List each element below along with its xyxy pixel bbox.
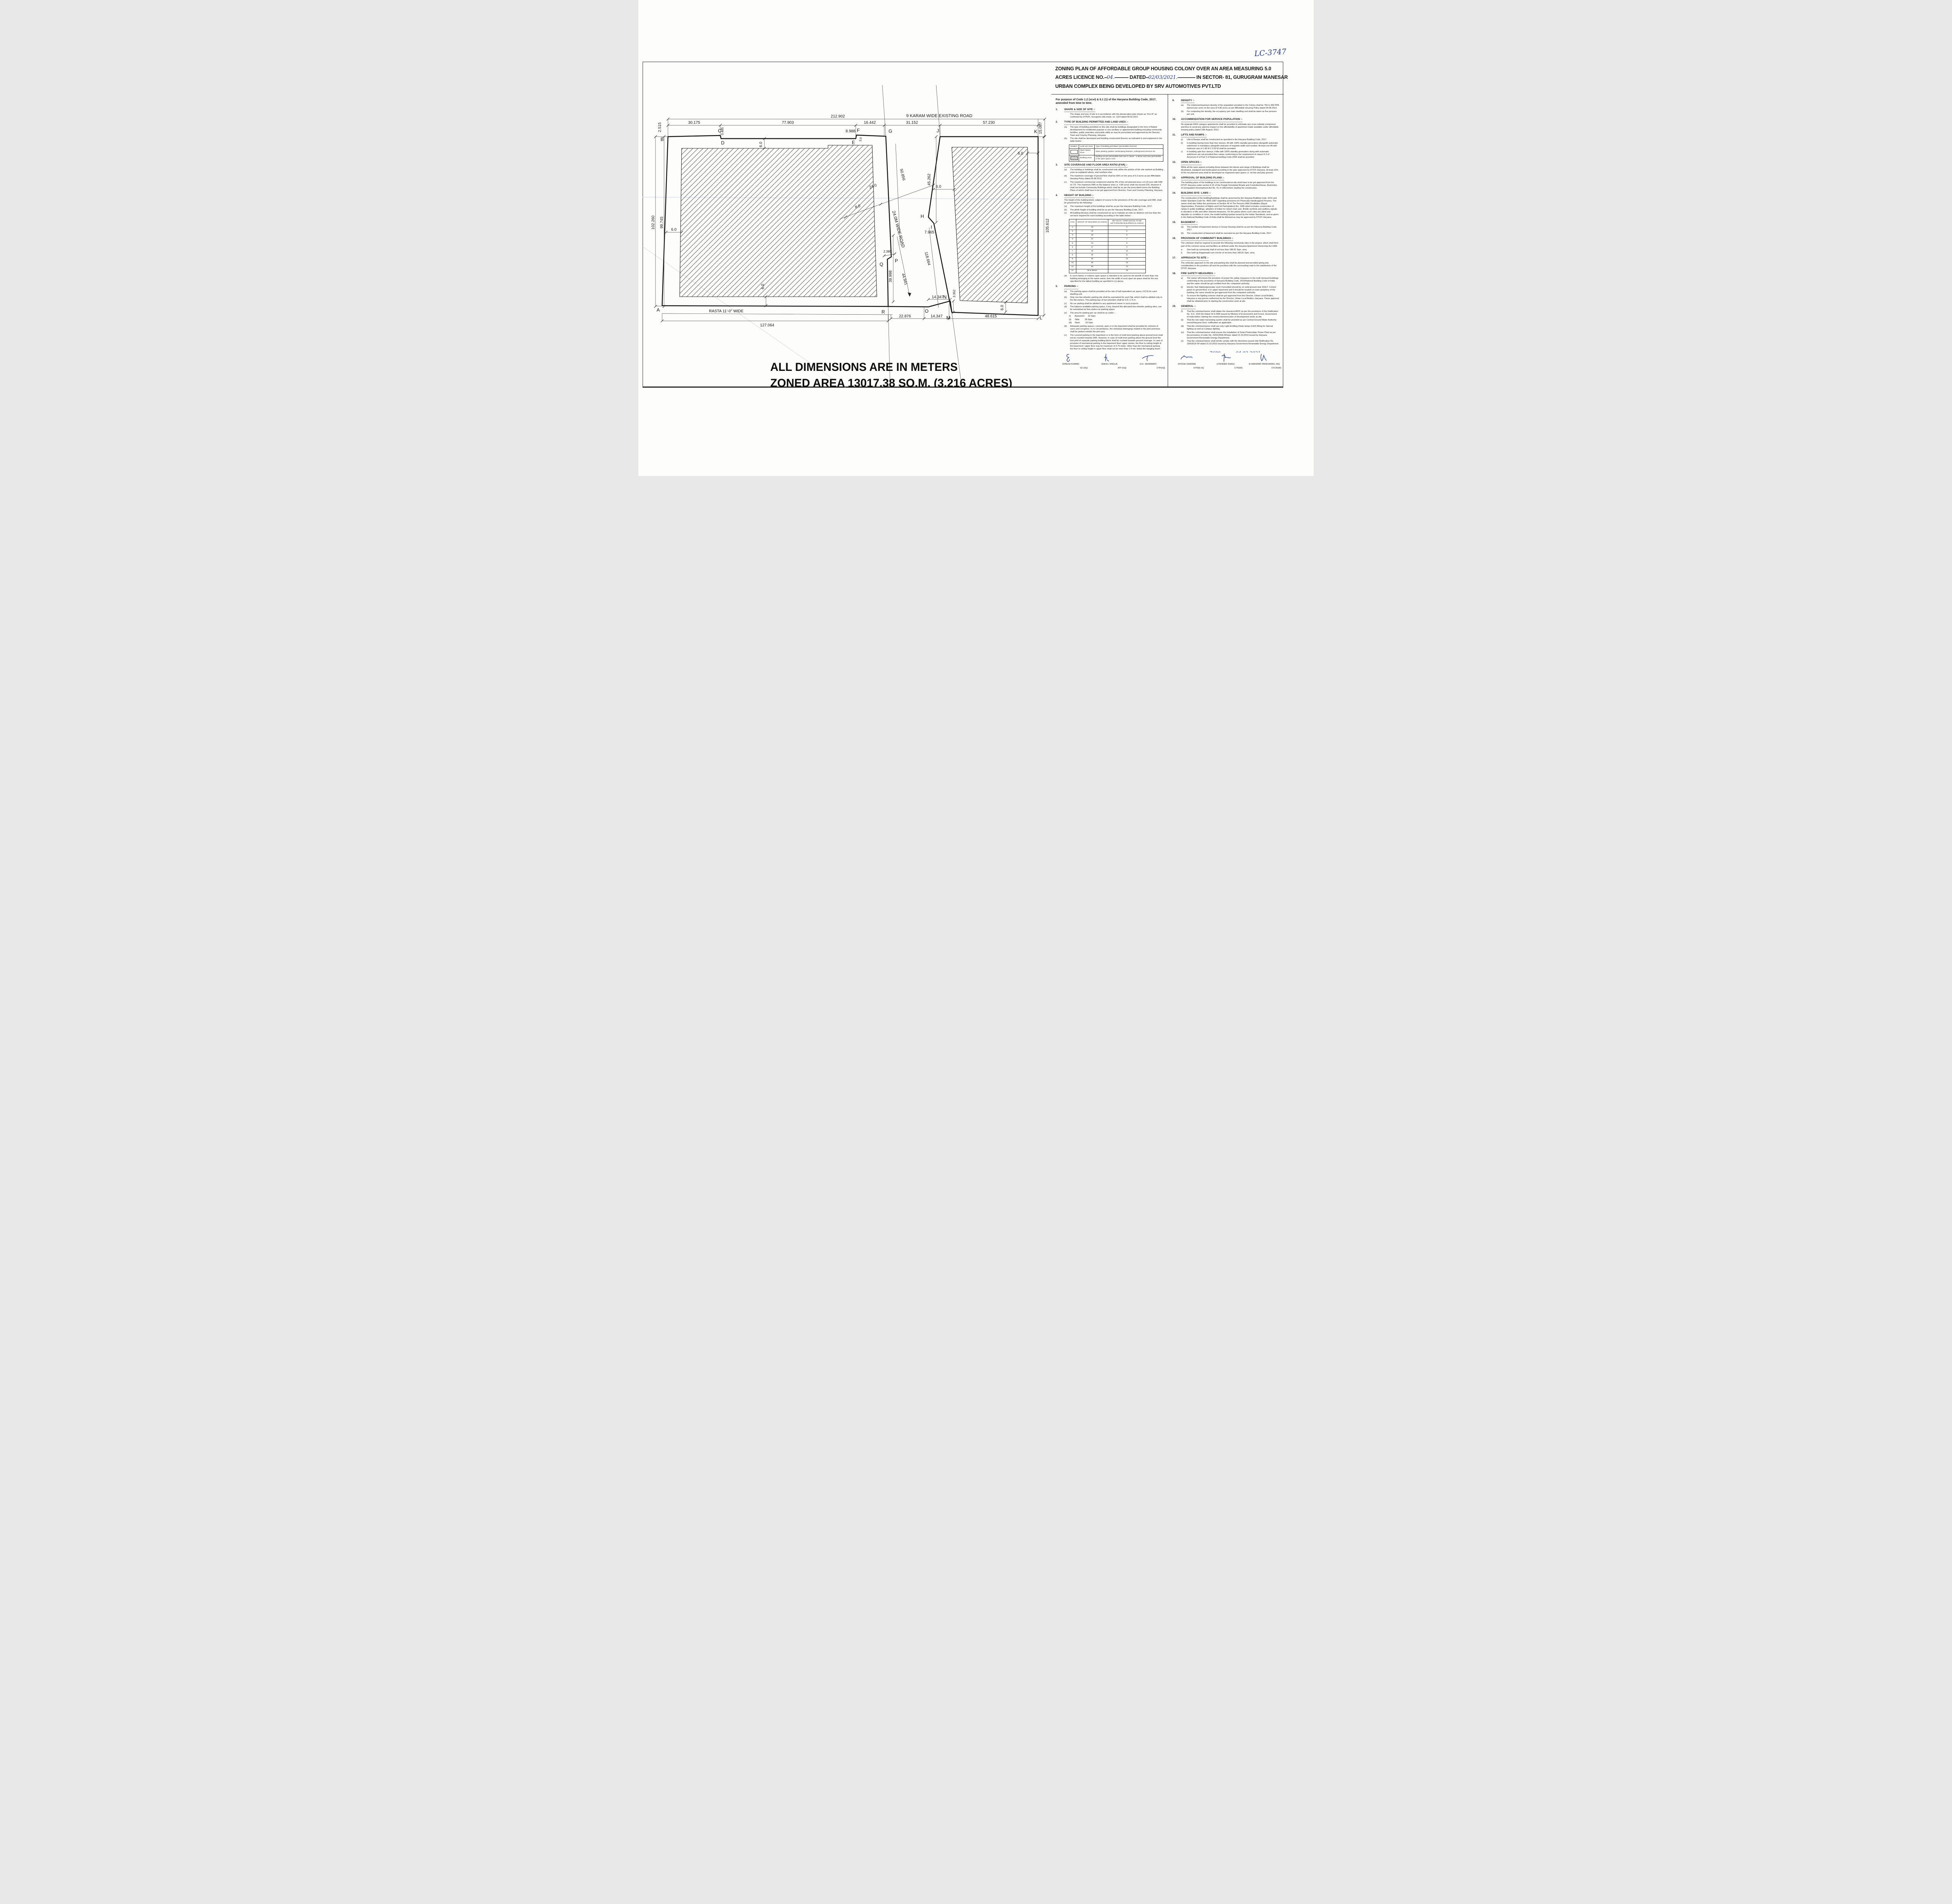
- note-item: (e)The area for parking per car shall be…: [1064, 312, 1163, 315]
- point-label: L: [1040, 315, 1042, 321]
- item-text: The owner will ensure the provision of p…: [1187, 277, 1279, 285]
- section-lead: The coloniser shall be required to provi…: [1181, 242, 1279, 248]
- hatch-rect-icon: [1070, 156, 1078, 160]
- section-lead: The vehicular approach to the site and p…: [1181, 262, 1279, 270]
- open-rect-icon: [1070, 150, 1078, 154]
- dimension-label: 3.0: [858, 137, 863, 142]
- item-text: The type of building permitted on this s…: [1070, 126, 1163, 137]
- signature-icon: [1218, 353, 1233, 363]
- section-number: 19.: [1172, 305, 1181, 309]
- section-number: 15.: [1172, 221, 1181, 225]
- building-zone-left-hatch: [680, 145, 877, 297]
- table-cell: 8.: [1069, 253, 1076, 257]
- setback-label: 6.0: [759, 142, 763, 147]
- table-cell: 16: [1108, 269, 1145, 273]
- section-lead: The height of the building block, subjec…: [1064, 199, 1163, 205]
- section-heading: 3.SITE COVERAGE AND FLOOR AREA RATIO (FA…: [1056, 164, 1163, 167]
- item-text: One built-up Anganwadi-cum-creche of not…: [1187, 252, 1279, 255]
- item-label: (i): [1181, 310, 1187, 319]
- section-heading: 9.DENSITY :-: [1172, 99, 1279, 103]
- note-item: (d)The balance available parking space, …: [1064, 306, 1163, 311]
- item-text: The parking space shall be provided at t…: [1070, 290, 1163, 296]
- note-item: (c)All building block(s) shall be constr…: [1064, 212, 1163, 217]
- note-item: (ii)Stilts 28 Sqm.: [1069, 319, 1163, 321]
- table-cell: 45: [1076, 261, 1108, 265]
- item-text: Stilts 28 Sqm.: [1075, 319, 1163, 321]
- item-text: The site shall be developed and building…: [1070, 137, 1163, 143]
- section-heading: 18.FIRE SAFETY MEASURES :-: [1172, 272, 1279, 276]
- licence-file-number: LC-3747: [1254, 47, 1286, 58]
- dimension-label: 22.876: [899, 314, 911, 319]
- item-label: (c): [1064, 334, 1070, 351]
- item-text: That the coloniser/owner shall obtain th…: [1187, 310, 1279, 319]
- signatory-role: STP(M) HQ: [1168, 367, 1206, 369]
- note-section: 18.FIRE SAFETY MEASURES :-a)The owner wi…: [1172, 272, 1279, 303]
- item-text: In building having more than four storey…: [1187, 142, 1279, 150]
- section-title: BASEMENT :-: [1181, 221, 1198, 225]
- column-header: S.No.: [1069, 219, 1076, 226]
- signature-block: (S.K. SEHRAWAT)DTP(HQ): [1129, 351, 1167, 386]
- dimension-label: 16.442: [864, 121, 876, 125]
- section-number: 10.: [1172, 118, 1181, 122]
- table-row: 3.186: [1069, 233, 1146, 237]
- dimension-label: 57.230: [983, 121, 995, 125]
- note-section: 12.OPEN SPACES :-While all the open spac…: [1172, 161, 1279, 175]
- item-label: (d): [1064, 306, 1070, 311]
- table-row: 7.3010: [1069, 249, 1146, 253]
- item-label: (a): [1064, 169, 1070, 174]
- section-lead: The construction of the building/buildin…: [1181, 197, 1279, 219]
- dimension-label: 2.515: [658, 122, 662, 132]
- table-cell: 15: [1076, 230, 1108, 233]
- note-section: 2.TYPE OF BUILDING PERMITTED AND LAND US…: [1056, 121, 1163, 162]
- section-number: 16.: [1172, 237, 1181, 241]
- note-item: b)In building having more than four stor…: [1181, 142, 1279, 150]
- item-label: a): [1181, 139, 1187, 141]
- signatory-role: DTP(HQ): [1129, 367, 1167, 369]
- table-cell: 7: [1108, 237, 1145, 241]
- item-label: b.: [1181, 252, 1187, 255]
- section-number: 18.: [1172, 272, 1181, 276]
- point-label: H: [921, 214, 924, 219]
- section-number: 17.: [1172, 256, 1181, 260]
- table-cell: 2.: [1069, 230, 1076, 233]
- section-title: TYPE OF BUILDING PERMITTED AND LAND USES…: [1064, 121, 1128, 125]
- table-cell: 3.: [1069, 233, 1076, 237]
- section-number: 12.: [1172, 161, 1181, 165]
- table-cell: 5.: [1069, 242, 1076, 246]
- section-heading: 5.PARKING :-: [1056, 285, 1163, 289]
- item-label: (ii): [1181, 319, 1187, 324]
- section-heading: 15.BASEMENT :-: [1172, 221, 1279, 225]
- section-number: 4.: [1056, 194, 1064, 198]
- signatory-role: CTP(HR): [1206, 367, 1245, 369]
- signature-block: (K.MAKRAND PANDURANG, IAS)DTCP(HR): [1245, 351, 1284, 386]
- section-number: 2.: [1056, 121, 1064, 125]
- table-cell: 10.: [1069, 261, 1076, 265]
- note-section: 11.LIFTS AND RAMPS :-a)Lifts & Ramps sha…: [1172, 134, 1279, 159]
- item-label: (b): [1064, 296, 1070, 302]
- point-label: R: [882, 309, 885, 315]
- dimension-tick: [880, 203, 882, 206]
- item-text: Only one two-wheeler parking site shall …: [1070, 296, 1163, 302]
- item-label: (b).: [1064, 137, 1070, 143]
- building-zone-right-hatch: [952, 147, 1028, 303]
- dimension-label: 118.664: [924, 251, 931, 266]
- item-label: (d): [1064, 275, 1070, 283]
- item-text: All building block(s) shall be construct…: [1070, 212, 1163, 217]
- point-label: C: [718, 128, 721, 134]
- dimension-label: 127.064: [760, 323, 775, 328]
- section-title: BUILDING BYE- LAWS :-: [1181, 192, 1211, 196]
- zoning-plan-sheet: LC-3747 ZONING PLAN OF AFFORDABLE GROUP …: [638, 0, 1314, 476]
- item-label: (c): [1064, 212, 1070, 217]
- table-row: 5.248: [1069, 242, 1146, 246]
- section-number: 11.: [1172, 134, 1181, 137]
- item-text: In building upto four storeys, if lifts …: [1187, 151, 1279, 159]
- signatory-role: SD (HQ): [1051, 367, 1090, 369]
- note-item: (a)The building or buildings shall be co…: [1064, 169, 1163, 174]
- type-cell: Open parking, garden, landscaping featur…: [1094, 149, 1163, 155]
- table-row: 2.155: [1069, 230, 1146, 233]
- land-use-table: NotationLand use ZoneType of Building pe…: [1069, 144, 1163, 162]
- note-item: (c)The covered parking in the basement o…: [1064, 334, 1163, 351]
- table-cell: 27: [1076, 246, 1108, 249]
- section-title: SITE COVERAGE AND FLOOR AREA RATIO (FAR)…: [1064, 164, 1128, 167]
- note-item: (b)The maximum coverage of ground floor …: [1064, 175, 1163, 180]
- item-text: Electric Sub Station/generator room if p…: [1187, 286, 1279, 294]
- note-item: (b).The site shall be developed and buil…: [1064, 137, 1163, 143]
- table-cell: 5: [1108, 230, 1145, 233]
- section-heading: 14.BUILDING BYE- LAWS :-: [1172, 192, 1279, 196]
- dimension-label: 50.856: [899, 168, 906, 181]
- table-row: 10.4513: [1069, 261, 1146, 265]
- column-header: HEIGHT OF BUILDING (in meters): [1076, 219, 1108, 226]
- note-item: (ii)That the rain water harvesting syste…: [1181, 319, 1279, 324]
- table-cell: 9.: [1069, 257, 1076, 261]
- notes-column-right: 9.DENSITY :-(a)The minimum/maximum densi…: [1168, 94, 1283, 353]
- table-cell: 4.: [1069, 237, 1076, 241]
- item-label: b): [1181, 286, 1187, 294]
- signatory-name: (RAHUL SINGLA): [1090, 363, 1129, 365]
- note-item: a.One built-up community Hall of not les…: [1181, 249, 1279, 251]
- signature-block: (RAHUL SINGLA)ATP (HQ): [1090, 351, 1129, 386]
- section-title: OPEN SPACES :-: [1181, 161, 1202, 165]
- section-heading: 16.PROVISION OF COMMUNITY BUILDINGS :-: [1172, 237, 1279, 241]
- item-label: (a): [1064, 290, 1070, 296]
- section-heading: 11.LIFTS AND RAMPS :-: [1172, 134, 1279, 137]
- setback-label: 6.0: [1018, 151, 1023, 156]
- section-number: 14.: [1172, 192, 1181, 196]
- section-lead: The building plans of the buildings to b…: [1181, 182, 1279, 190]
- section-title: APPROVAL OF BUILDING PLANS :-: [1181, 176, 1224, 180]
- note-section: 4.HEIGHT OF BUILDING :-The height of the…: [1056, 194, 1163, 283]
- item-text: The balance available parking space, if …: [1070, 306, 1163, 311]
- section-title: LIFTS AND RAMPS :-: [1181, 134, 1207, 137]
- note-section: 19.GENERAL :-(i)That the coloniser/owner…: [1172, 305, 1279, 346]
- signature-block: (HITESH SHARMA)STP(M) HQ: [1168, 351, 1206, 386]
- point-label: K: [1034, 129, 1037, 134]
- licence-no-handwritten: 04.: [1107, 75, 1114, 80]
- section-lead: No separate EWS category apartments shal…: [1181, 123, 1279, 132]
- item-text: One built-up community Hall of not less …: [1187, 249, 1279, 251]
- notation-cell: [1069, 155, 1079, 161]
- table-cell: 55 & above: [1076, 269, 1108, 273]
- column-header: Notation: [1069, 145, 1079, 149]
- signature-icon: [1141, 353, 1156, 363]
- item-label: a.: [1181, 249, 1187, 251]
- setback-label: 6.0: [936, 185, 941, 189]
- item-label: (iii): [1181, 325, 1187, 331]
- item-text: Basement 32 Sqm.: [1075, 315, 1163, 318]
- dimension-label: 7.965: [924, 230, 934, 235]
- item-text: That the rain water harvesting system sh…: [1187, 319, 1279, 324]
- dimension-label: 15.087: [1038, 122, 1043, 134]
- note-item: (b)Adequate parking spaces, covered, ope…: [1064, 325, 1163, 333]
- note-section: 9.DENSITY :-(a)The minimum/maximum densi…: [1172, 99, 1279, 116]
- item-text: If, such interior or exterior open space…: [1070, 275, 1163, 283]
- point-label: Q: [880, 262, 883, 267]
- site-boundary-south-step: [888, 301, 952, 312]
- note-item: (a)The number of basement storeys in Gro…: [1181, 226, 1279, 232]
- table-row: 6.279: [1069, 246, 1146, 249]
- zone-cell: Open Space Zone: [1079, 149, 1095, 155]
- point-label: D: [721, 140, 725, 146]
- section-number: 13.: [1172, 176, 1181, 180]
- point-label: I: [931, 224, 932, 230]
- dimensions-note: ALL DIMENSIONS ARE IN METERS: [770, 361, 958, 374]
- dimension-label: 105.612: [1045, 218, 1050, 233]
- point-label: N: [943, 294, 947, 300]
- table-row: 9.4012: [1069, 257, 1146, 261]
- item-label: c): [1181, 151, 1187, 159]
- setback-label: 6.0: [761, 284, 765, 289]
- section-lead: While all the open spaces including thos…: [1181, 166, 1279, 175]
- item-label: c): [1181, 295, 1187, 303]
- note-section: 17.APPROACH TO SITE :-The vehicular appr…: [1172, 256, 1279, 270]
- note-item: (b)For computing the density, the occupa…: [1181, 110, 1279, 116]
- note-section: 3.SITE COVERAGE AND FLOOR AREA RATIO (FA…: [1056, 164, 1163, 192]
- section-number: 1.: [1056, 108, 1064, 112]
- item-text: That the coloniser/owner shall strictly …: [1187, 340, 1279, 346]
- item-text: The building or buildings shall be const…: [1070, 169, 1163, 174]
- dimension-label: 102.260: [651, 215, 655, 230]
- dimension-label: 77.903: [782, 121, 794, 125]
- note-item: (a)The maximum height of the buildings s…: [1064, 205, 1163, 208]
- column-header: Type of Building permitted / permissible…: [1094, 145, 1163, 149]
- signature-icon: [1179, 353, 1194, 363]
- item-text: Open 23 Sqm.: [1075, 322, 1163, 324]
- note-item: (a)The parking space shall be provided a…: [1064, 290, 1163, 296]
- dimension-label: 45.262: [927, 173, 931, 185]
- table-cell: 11.: [1069, 265, 1076, 269]
- table-cell: 14: [1108, 265, 1145, 269]
- note-item: (c)The maximum commercial component shal…: [1064, 181, 1163, 192]
- table-cell: 10: [1076, 226, 1108, 230]
- item-label: (c): [1064, 181, 1070, 192]
- table-row: 8.3511: [1069, 253, 1146, 257]
- point-label: A: [657, 307, 660, 313]
- item-text: The area for parking per car shall be as…: [1070, 312, 1163, 315]
- section-number: 9.: [1172, 99, 1181, 103]
- note-section: 14.BUILDING BYE- LAWS :-The construction…: [1172, 192, 1279, 219]
- title-line-1: ZONING PLAN OF AFFORDABLE GROUP HOUSING …: [1055, 64, 1274, 73]
- section-heading: 13.APPROVAL OF BUILDING PLANS :-: [1172, 176, 1279, 180]
- table-cell: 10: [1108, 249, 1145, 253]
- point-label: E: [852, 140, 855, 145]
- note-item: c)To ensure fire fighting scheme shall b…: [1181, 295, 1279, 303]
- dimension-label: 8.988: [846, 129, 855, 134]
- table-cell: 1.: [1069, 226, 1076, 230]
- item-label: [1064, 113, 1070, 119]
- item-text: The maximum coverage of ground floor sha…: [1070, 175, 1163, 180]
- item-label: (c): [1064, 303, 1070, 305]
- signatory-role: DTCP(HR): [1245, 367, 1284, 369]
- item-label: (a): [1181, 104, 1187, 110]
- item-text: That the coloniser/owner shall use only …: [1187, 325, 1279, 331]
- dimension-label: 14.347: [931, 314, 943, 319]
- item-text: For computing the density, the occupancy…: [1187, 110, 1279, 116]
- section-heading: 19.GENERAL :-: [1172, 305, 1279, 309]
- note-item: b.One built-up Anganwadi-cum-creche of n…: [1181, 252, 1279, 255]
- dimension-label: 30.175: [688, 121, 700, 125]
- table-cell: 12: [1108, 257, 1145, 261]
- section-number: 3.: [1056, 164, 1064, 167]
- table-cell: 12.: [1069, 269, 1076, 273]
- dimension-label: 212.902: [831, 114, 845, 119]
- section-heading: 10.ACCOMMODATION FOR SERVICE POPULATION …: [1172, 118, 1279, 122]
- note-section: 15.BASEMENT :-(a)The number of basement …: [1172, 221, 1279, 235]
- item-label: (a).: [1064, 126, 1070, 137]
- note-item: (b)Only one two-wheeler parking site sha…: [1064, 296, 1163, 302]
- item-text: No car parking shall be allotted to any …: [1070, 303, 1163, 305]
- dimension-label: 44.941: [901, 273, 908, 286]
- signature-block: (DINESH KUMAR)SD (HQ): [1051, 351, 1090, 386]
- table-cell: 7.: [1069, 249, 1076, 253]
- item-text: The number of basement storeys in Group …: [1187, 226, 1279, 232]
- table-cell: 6: [1108, 233, 1145, 237]
- table-cell: 21: [1076, 237, 1108, 241]
- section-title: HEIGHT OF BUILDING :-: [1064, 194, 1094, 198]
- note-item: (v)That the coloniser/owner shall strict…: [1181, 340, 1279, 346]
- table-row: 11.5014: [1069, 265, 1146, 269]
- signature-block: (JITENDER SIHAG)CTP(HR): [1206, 351, 1245, 386]
- type-cell: Building as per permissible land use in …: [1094, 155, 1163, 161]
- column-header: Land use Zone: [1079, 145, 1095, 149]
- item-label: (b): [1064, 209, 1070, 212]
- signatory-name: (HITESH SHARMA): [1168, 363, 1206, 365]
- item-text: To ensure fire fighting scheme shall be …: [1187, 295, 1279, 303]
- setback-label: 6.0: [671, 228, 677, 232]
- table-cell: 50: [1076, 265, 1108, 269]
- rasta-label: RASTA 11'-0" WIDE: [709, 309, 744, 313]
- table-row: S.No.HEIGHT OF BUILDING (in meters)SET B…: [1069, 219, 1146, 226]
- note-item: (b)The plinth height of building shall b…: [1064, 209, 1163, 212]
- item-text: The maximum commercial component shall b…: [1070, 181, 1163, 192]
- table-cell: 35: [1076, 253, 1108, 257]
- licence-date-handwritten: 02/03/2021.: [1148, 75, 1177, 80]
- table-cell: 8: [1108, 242, 1145, 246]
- section-title: GENERAL :-: [1181, 305, 1196, 309]
- section-heading: 12.OPEN SPACES :-: [1172, 161, 1279, 165]
- item-label: (iv): [1181, 331, 1187, 340]
- zone-cell: Building Zone: [1079, 155, 1095, 161]
- table-row: 12.55 & above16: [1069, 269, 1146, 273]
- table-cell: 3: [1108, 226, 1145, 230]
- setback-label: 6.0: [1000, 305, 1004, 310]
- table-cell: 13: [1108, 261, 1145, 265]
- item-text: Lifts & Ramps shall be constructed as sp…: [1187, 139, 1279, 141]
- title-line-2: ACRES LICENCE NO.--04.----------- DATED-…: [1055, 73, 1274, 82]
- item-text: The maximum height of the buildings shal…: [1070, 205, 1163, 208]
- section-title: ACCOMMODATION FOR SERVICE POPULATION :-: [1181, 118, 1243, 122]
- dimension-tick: [894, 253, 896, 255]
- table-cell: 24: [1076, 242, 1108, 246]
- section-title: PROVISION OF COMMUNITY BUILDINGS :-: [1181, 237, 1233, 241]
- signature-icon: [1102, 353, 1117, 363]
- item-label: (v): [1181, 340, 1187, 346]
- point-label: O: [925, 308, 928, 314]
- dimension-label: 31.152: [906, 121, 918, 125]
- item-label: (iii): [1069, 322, 1075, 324]
- dimension-label: 14.347: [932, 295, 944, 299]
- signature-icon: [1063, 353, 1078, 363]
- note-item: (a).The type of building permitted on th…: [1064, 126, 1163, 137]
- item-label: (i): [1069, 315, 1075, 318]
- item-label: (b): [1064, 175, 1070, 180]
- note-item: (i)Basement 32 Sqm.: [1069, 315, 1163, 318]
- section-heading: 1.SHAPE & SIZE OF SITE :-: [1056, 108, 1163, 112]
- title-block: ZONING PLAN OF AFFORDABLE GROUP HOUSING …: [1051, 62, 1284, 94]
- note-section: 10.ACCOMMODATION FOR SERVICE POPULATION …: [1172, 118, 1279, 132]
- note-item: c)In building upto four storeys, if lift…: [1181, 151, 1279, 159]
- item-label: (b): [1181, 110, 1187, 116]
- signatory-role: ATP (HQ): [1090, 367, 1129, 369]
- item-text: The covered parking in the basement or i…: [1070, 334, 1163, 351]
- table-row: 4.217: [1069, 237, 1146, 241]
- zoned-area-note: ZONED AREA 13017.38 SQ.M. (3.216 ACRES): [770, 377, 1012, 388]
- section-title: SHAPE & SIZE OF SITE :-: [1064, 108, 1095, 112]
- section-heading: 2.TYPE OF BUILDING PERMITTED AND LAND US…: [1056, 121, 1163, 125]
- note-section: 1.SHAPE & SIZE OF SITE :-The shape and s…: [1056, 108, 1163, 119]
- dimension-label: 3.352: [953, 289, 956, 297]
- item-label: b): [1181, 142, 1187, 150]
- dimension-label: 2.385: [883, 250, 892, 253]
- signatory-name: (K.MAKRAND PANDURANG, IAS): [1245, 363, 1284, 365]
- table-cell: 30: [1076, 249, 1108, 253]
- section-title: PARKING :-: [1064, 285, 1078, 289]
- existing-road-label: 9 KARAM WIDE EXISTING ROAD: [906, 114, 972, 118]
- item-text: That the coloniser/owner shall ensure th…: [1187, 331, 1279, 340]
- notes-column-left: For purpose of Code 1.2 (xcvi) & 6.1 (1)…: [1051, 94, 1168, 353]
- point-label: F: [857, 128, 860, 133]
- dimension-label: 39.998: [889, 270, 893, 282]
- note-item: (b)The construction of basement shall be…: [1181, 232, 1279, 235]
- note-item: The shape and size of site is in accorda…: [1064, 113, 1163, 119]
- note-item: (c)No car parking shall be allotted to a…: [1064, 303, 1163, 305]
- notation-cell: [1069, 149, 1079, 155]
- table-row: Open Space ZoneOpen parking, garden, lan…: [1069, 149, 1163, 155]
- dimension-label: 48.615: [985, 314, 997, 319]
- notes-intro: For purpose of Code 1.2 (xcvi) & 6.1 (1)…: [1056, 98, 1163, 105]
- note-item: (d)If, such interior or exterior open sp…: [1064, 275, 1163, 283]
- column-header: SET BACK / OPEN SPACE TO BE LEFTAROUND B…: [1108, 219, 1145, 226]
- item-text: The shape and size of site is in accorda…: [1070, 113, 1163, 119]
- item-text: The construction of basement shall be ex…: [1187, 232, 1279, 235]
- table-cell: 11: [1108, 253, 1145, 257]
- note-section: 5.PARKING :-(a)The parking space shall b…: [1056, 285, 1163, 351]
- signatory-name: (DINESH KUMAR): [1051, 363, 1090, 365]
